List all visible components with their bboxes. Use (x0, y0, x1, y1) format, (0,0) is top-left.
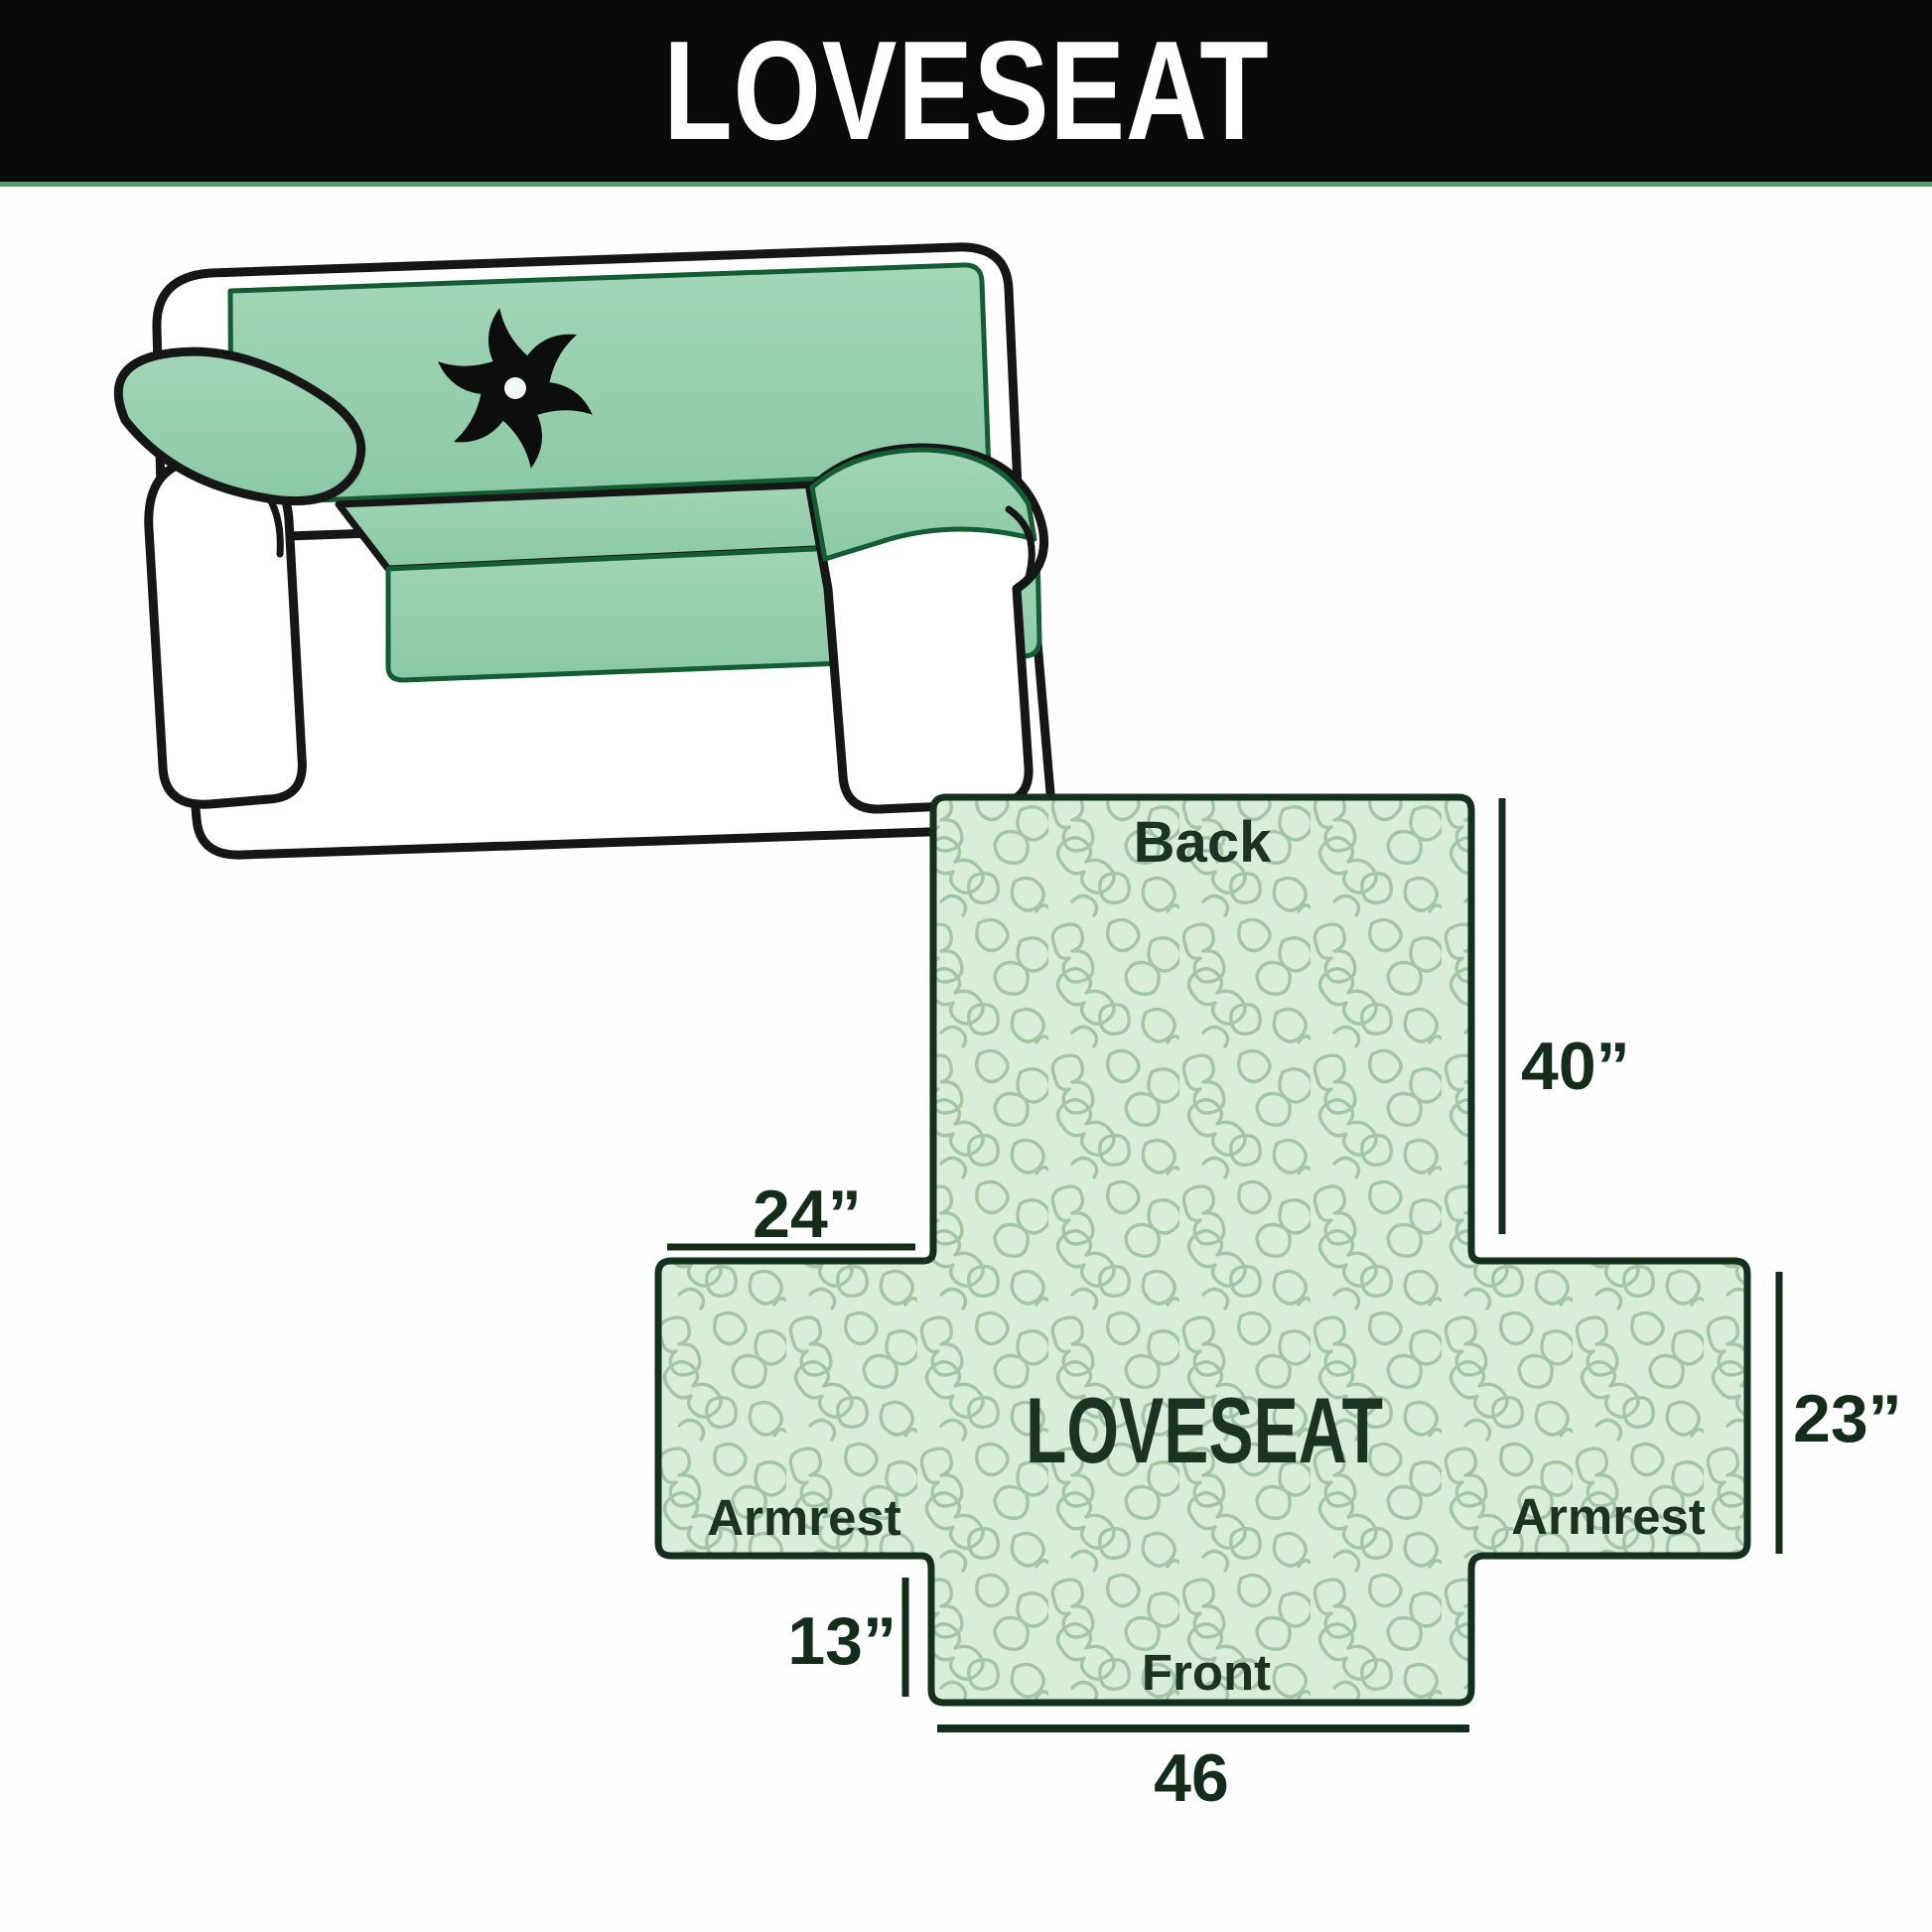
diagram-svg: Back LOVESEAT Armrest Armrest Front 40” … (616, 755, 1932, 1857)
header-banner: LOVESEAT (0, 0, 1932, 187)
dim-back-height: 40” (1521, 1029, 1630, 1104)
armrest-right-label: Armrest (1511, 1488, 1706, 1545)
armrest-left-label: Armrest (707, 1489, 901, 1546)
dim-armrest-top-width: 24” (753, 1176, 862, 1252)
cover-dimension-diagram: Back LOVESEAT Armrest Armrest Front 40” … (616, 755, 1932, 1857)
sofa-left-arm (149, 460, 303, 804)
dim-front-width: 46 (1154, 1740, 1229, 1816)
dim-armrest-side-height: 23” (1793, 1381, 1902, 1456)
page-title: LOVESEAT (663, 10, 1269, 173)
dim-front-drop: 13” (787, 1603, 897, 1679)
front-panel-label: Front (1142, 1644, 1271, 1701)
center-product-label: LOVESEAT (1026, 1378, 1383, 1482)
back-panel-label: Back (1134, 810, 1272, 875)
page: LOVESEAT (0, 0, 1932, 1932)
